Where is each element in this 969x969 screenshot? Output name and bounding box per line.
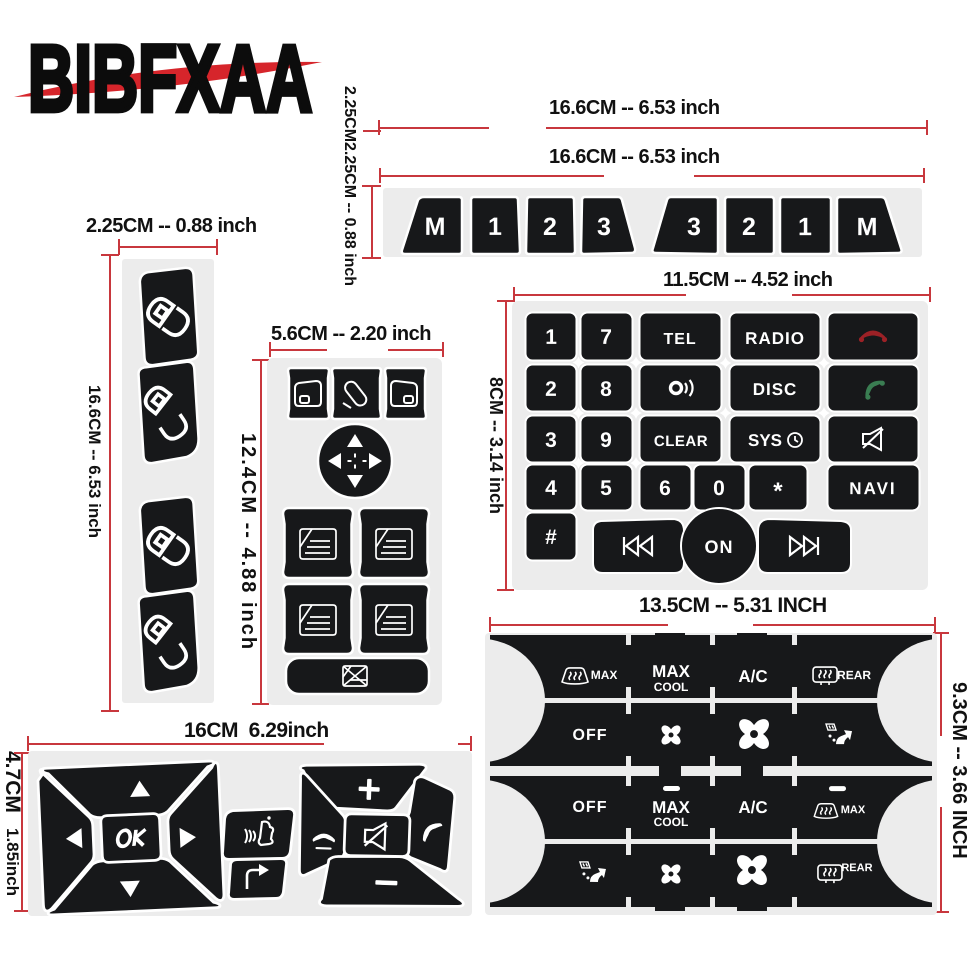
svg-text:#: #: [545, 526, 557, 549]
svg-text:4: 4: [545, 477, 557, 500]
svg-text:COOL: COOL: [654, 680, 689, 694]
svg-text:REAR: REAR: [837, 668, 871, 682]
svg-text:*: *: [773, 478, 783, 505]
svg-text:TEL: TEL: [663, 331, 696, 348]
svg-text:OFF: OFF: [572, 799, 607, 816]
svg-text:2: 2: [545, 378, 557, 401]
svg-text:8: 8: [600, 378, 612, 401]
svg-text:7: 7: [600, 326, 612, 349]
svg-text:M: M: [425, 213, 446, 241]
svg-text:REAR: REAR: [841, 862, 872, 874]
svg-text:1: 1: [798, 213, 812, 241]
svg-text:MAX: MAX: [591, 668, 618, 682]
svg-text:CLEAR: CLEAR: [654, 433, 708, 450]
svg-text:A/C: A/C: [738, 667, 767, 686]
svg-text:3: 3: [597, 213, 611, 241]
svg-text:2: 2: [742, 213, 756, 241]
svg-text:OFF: OFF: [573, 727, 608, 744]
svg-text:A/C: A/C: [738, 798, 767, 817]
svg-text:3: 3: [545, 429, 557, 452]
svg-text:5: 5: [600, 477, 612, 500]
svg-text:3: 3: [687, 213, 701, 241]
svg-text:COOL: COOL: [654, 815, 689, 829]
svg-text:6: 6: [659, 477, 671, 500]
svg-text:2: 2: [543, 213, 557, 241]
svg-text:M: M: [857, 213, 878, 241]
svg-text:SYS: SYS: [748, 431, 782, 450]
svg-text:MAX: MAX: [841, 804, 866, 816]
svg-text:9: 9: [600, 429, 612, 452]
svg-text:NAVI: NAVI: [849, 479, 896, 498]
svg-text:1: 1: [488, 213, 502, 241]
svg-text:MAX: MAX: [652, 662, 690, 681]
svg-text:RADIO: RADIO: [745, 329, 805, 348]
svg-text:ON: ON: [704, 537, 733, 557]
svg-text:1: 1: [545, 326, 557, 349]
svg-text:0: 0: [713, 477, 725, 500]
svg-text:DISC: DISC: [753, 380, 798, 399]
